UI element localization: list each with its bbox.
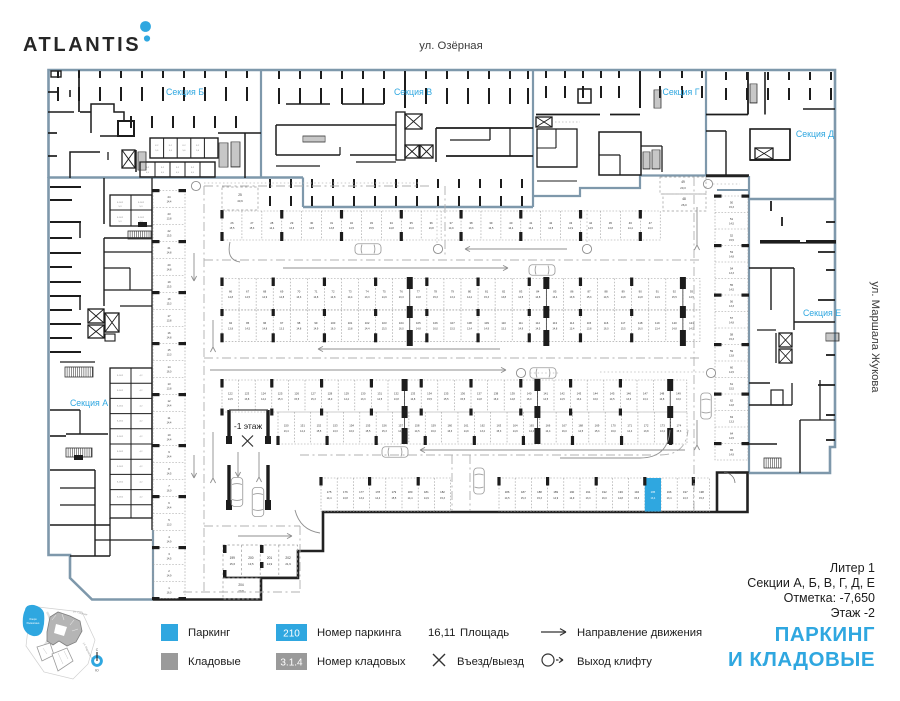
svg-text:16,0: 16,0: [638, 327, 643, 330]
svg-text:56: 56: [730, 299, 734, 303]
svg-text:14,8: 14,8: [729, 255, 734, 258]
svg-text:86: 86: [570, 290, 574, 294]
svg-text:13,8: 13,8: [394, 398, 399, 401]
svg-text:154: 154: [349, 423, 354, 427]
svg-text:61: 61: [730, 382, 734, 386]
svg-text:14,5: 14,5: [560, 398, 565, 401]
svg-text:15,3: 15,3: [167, 303, 172, 306]
svg-text:136: 136: [460, 391, 465, 395]
svg-text:36: 36: [430, 221, 434, 225]
svg-text:153: 153: [333, 423, 338, 427]
svg-text:13,4: 13,4: [450, 296, 455, 299]
svg-text:118: 118: [638, 321, 643, 325]
svg-text:64: 64: [730, 431, 734, 435]
svg-text:38: 38: [469, 221, 473, 225]
svg-text:16,0: 16,0: [167, 490, 172, 493]
svg-text:14,8: 14,8: [552, 327, 557, 330]
svg-text:К-1/02: К-1/02: [117, 202, 124, 204]
svg-text:25: 25: [238, 193, 242, 197]
svg-text:40: 40: [509, 221, 513, 225]
svg-text:14,9: 14,9: [655, 296, 660, 299]
svg-text:92: 92: [673, 290, 677, 294]
svg-text:156: 156: [382, 423, 387, 427]
svg-text:14,4: 14,4: [261, 398, 266, 401]
svg-text:13,8: 13,8: [429, 227, 434, 230]
svg-text:175: 175: [327, 490, 332, 494]
svg-text:75: 75: [383, 290, 387, 294]
svg-text:14,8: 14,8: [167, 337, 172, 340]
svg-text:13,3: 13,3: [469, 227, 474, 230]
svg-text:145: 145: [610, 391, 615, 395]
svg-text:95: 95: [246, 321, 250, 325]
svg-text:К-1/02: К-1/02: [117, 451, 124, 453]
svg-text:16,0: 16,0: [167, 371, 172, 374]
svg-text:14,8: 14,8: [535, 296, 540, 299]
svg-text:14,9: 14,9: [568, 227, 573, 230]
svg-text:138: 138: [494, 391, 499, 395]
svg-text:160: 160: [447, 423, 452, 427]
svg-text:127: 127: [311, 391, 316, 395]
svg-text:140: 140: [527, 391, 532, 395]
svg-text:200: 200: [248, 556, 254, 560]
svg-text:И КЛАДОВЫЕ: И КЛАДОВЫЕ: [728, 648, 875, 671]
svg-text:14,5: 14,5: [245, 327, 250, 330]
svg-text:15,5: 15,5: [382, 327, 387, 330]
svg-text:13,8: 13,8: [167, 388, 172, 391]
svg-text:39: 39: [489, 221, 493, 225]
svg-text:14,5: 14,5: [518, 296, 523, 299]
svg-text:87: 87: [587, 290, 591, 294]
svg-text:15,5: 15,5: [167, 286, 172, 289]
svg-text:116: 116: [604, 321, 609, 325]
svg-text:ул. Озёрная: ул. Озёрная: [419, 40, 482, 52]
svg-text:13,8: 13,8: [644, 430, 649, 433]
svg-text:88: 88: [605, 290, 609, 294]
svg-text:14,8: 14,8: [672, 327, 677, 330]
svg-text:120: 120: [672, 321, 677, 325]
svg-text:105: 105: [416, 321, 421, 325]
svg-text:К-1/02: К-1/02: [117, 481, 124, 483]
svg-text:13,3: 13,3: [365, 296, 370, 299]
svg-text:112: 112: [536, 321, 541, 325]
svg-text:147: 147: [643, 391, 648, 395]
svg-text:Направление движения: Направление движения: [577, 627, 702, 639]
svg-text:13,8: 13,8: [167, 218, 172, 221]
svg-text:72: 72: [331, 290, 335, 294]
svg-text:Выход клифту: Выход клифту: [577, 656, 652, 668]
svg-text:21: 21: [167, 246, 171, 250]
svg-text:177: 177: [359, 490, 364, 494]
svg-text:110: 110: [501, 321, 506, 325]
svg-text:191: 191: [586, 490, 591, 494]
svg-text:23: 23: [167, 212, 171, 216]
svg-text:14,5: 14,5: [488, 227, 493, 230]
svg-text:14,9: 14,9: [382, 296, 387, 299]
svg-text:199: 199: [230, 556, 236, 560]
svg-text:124: 124: [261, 391, 266, 395]
svg-text:130: 130: [361, 391, 366, 395]
svg-text:181: 181: [424, 490, 429, 494]
svg-text:13,3: 13,3: [626, 398, 631, 401]
svg-text:67: 67: [246, 290, 250, 294]
svg-text:14,9: 14,9: [569, 497, 574, 500]
svg-text:159: 159: [431, 423, 436, 427]
svg-text:20,3: 20,3: [680, 186, 686, 190]
svg-text:14,4: 14,4: [627, 430, 632, 433]
svg-text:33: 33: [370, 221, 374, 225]
svg-text:15,5: 15,5: [366, 430, 371, 433]
svg-text:76: 76: [400, 290, 404, 294]
svg-text:13,3: 13,3: [361, 398, 366, 401]
svg-text:15,3: 15,3: [595, 430, 600, 433]
svg-text:14,4: 14,4: [167, 456, 172, 459]
svg-text:171: 171: [627, 423, 632, 427]
svg-text:Кладовые: Кладовые: [188, 656, 241, 668]
svg-text:14,4: 14,4: [269, 227, 274, 230]
svg-text:ПАРКИНГ: ПАРКИНГ: [775, 623, 875, 646]
svg-text:192: 192: [602, 490, 607, 494]
svg-text:71: 71: [314, 290, 318, 294]
svg-text:К-1/02: К-1/02: [117, 405, 124, 407]
svg-text:14,9: 14,9: [167, 541, 172, 544]
svg-text:122: 122: [228, 391, 233, 395]
svg-text:Секция А: Секция А: [70, 398, 108, 408]
svg-text:К-1/02: К-1/02: [117, 375, 124, 377]
svg-text:44: 44: [589, 221, 593, 225]
svg-text:15,3: 15,3: [537, 497, 542, 500]
svg-text:15,5: 15,5: [621, 327, 626, 330]
svg-text:15,6: 15,6: [230, 562, 236, 566]
svg-text:90: 90: [639, 290, 643, 294]
svg-text:14,4: 14,4: [529, 430, 534, 433]
svg-text:53: 53: [730, 250, 734, 254]
svg-text:58: 58: [730, 332, 734, 336]
svg-text:К-1/02: К-1/02: [117, 421, 124, 423]
svg-text:129: 129: [344, 391, 349, 395]
svg-text:193: 193: [618, 490, 623, 494]
svg-text:85: 85: [553, 290, 557, 294]
svg-text:14,8: 14,8: [167, 252, 172, 255]
svg-text:14,9: 14,9: [262, 296, 267, 299]
svg-text:170: 170: [611, 423, 616, 427]
svg-text:204: 204: [238, 583, 244, 587]
svg-text:125: 125: [278, 391, 283, 395]
svg-text:15,3: 15,3: [249, 227, 254, 230]
svg-text:Въезд/выезд: Въезд/выезд: [457, 656, 524, 668]
svg-text:14,4: 14,4: [300, 430, 305, 433]
svg-text:152: 152: [317, 423, 322, 427]
svg-text:14,4: 14,4: [327, 497, 332, 500]
svg-text:К-1/02: К-1/02: [138, 217, 145, 219]
svg-text:14,8: 14,8: [389, 227, 394, 230]
svg-text:60: 60: [730, 365, 734, 369]
svg-text:197: 197: [683, 490, 688, 494]
svg-text:15,3: 15,3: [501, 327, 506, 330]
svg-text:15,3: 15,3: [311, 398, 316, 401]
svg-text:14,4: 14,4: [167, 422, 172, 425]
svg-text:14,5: 14,5: [548, 227, 553, 230]
svg-text:164: 164: [513, 423, 518, 427]
svg-text:108: 108: [467, 321, 472, 325]
svg-text:14,8: 14,8: [659, 398, 664, 401]
svg-text:117: 117: [621, 321, 626, 325]
svg-text:Озеро: Озеро: [29, 617, 37, 621]
svg-text:ул. Маршала Жукова: ул. Маршала Жукова: [869, 281, 881, 393]
svg-text:34: 34: [390, 221, 394, 225]
svg-text:15,3: 15,3: [587, 296, 592, 299]
svg-text:13,8: 13,8: [167, 320, 172, 323]
svg-text:14,4: 14,4: [467, 296, 472, 299]
svg-text:16,0: 16,0: [167, 592, 172, 595]
svg-text:15: 15: [167, 348, 171, 352]
svg-text:14,8: 14,8: [729, 321, 734, 324]
svg-text:97: 97: [280, 321, 284, 325]
svg-text:Этаж -2: Этаж -2: [831, 606, 876, 620]
svg-text:169: 169: [595, 423, 600, 427]
svg-text:59: 59: [730, 349, 734, 353]
svg-text:13,3: 13,3: [399, 296, 404, 299]
svg-text:14,9: 14,9: [518, 327, 523, 330]
svg-text:14,8: 14,8: [618, 497, 623, 500]
svg-text:24: 24: [167, 195, 171, 199]
svg-text:13,3: 13,3: [409, 227, 414, 230]
svg-text:52: 52: [730, 233, 734, 237]
svg-text:14,5: 14,5: [588, 227, 593, 230]
svg-text:46: 46: [629, 221, 633, 225]
svg-text:Секция Д: Секция Д: [796, 129, 834, 139]
svg-text:27: 27: [250, 221, 254, 225]
svg-text:134: 134: [427, 391, 432, 395]
svg-text:139: 139: [510, 391, 515, 395]
svg-text:15,3: 15,3: [496, 430, 501, 433]
svg-text:13,3: 13,3: [648, 227, 653, 230]
svg-text:13,4: 13,4: [660, 430, 665, 433]
svg-text:45: 45: [609, 221, 613, 225]
svg-text:166: 166: [546, 423, 551, 427]
svg-text:15,5: 15,5: [672, 296, 677, 299]
svg-text:167: 167: [562, 423, 567, 427]
svg-text:144: 144: [593, 391, 598, 395]
svg-text:66: 66: [229, 290, 233, 294]
svg-text:135: 135: [444, 391, 449, 395]
svg-text:16: 16: [167, 331, 171, 335]
svg-text:82: 82: [502, 290, 506, 294]
svg-text:74: 74: [366, 290, 370, 294]
svg-text:14,5: 14,5: [167, 558, 172, 561]
svg-text:14,8: 14,8: [262, 327, 267, 330]
svg-text:14,9: 14,9: [449, 227, 454, 230]
svg-text:14,8: 14,8: [621, 296, 626, 299]
svg-text:15,5: 15,5: [450, 327, 455, 330]
svg-text:14,8: 14,8: [416, 327, 421, 330]
svg-text:13,4: 13,4: [667, 497, 672, 500]
svg-text:13,8: 13,8: [608, 227, 613, 230]
svg-text:13,8: 13,8: [348, 327, 353, 330]
svg-text:14,4: 14,4: [375, 497, 380, 500]
svg-text:22: 22: [167, 229, 171, 233]
svg-text:146: 146: [626, 391, 631, 395]
svg-text:13,3: 13,3: [586, 497, 591, 500]
svg-text:16,0: 16,0: [431, 430, 436, 433]
svg-text:14,8: 14,8: [313, 296, 318, 299]
svg-text:13,3: 13,3: [683, 497, 688, 500]
svg-text:13,4: 13,4: [576, 398, 581, 401]
svg-text:18: 18: [167, 297, 171, 301]
svg-text:14,9: 14,9: [484, 327, 489, 330]
svg-text:180: 180: [408, 490, 413, 494]
svg-text:К-1/02: К-1/02: [117, 436, 124, 438]
svg-text:50: 50: [730, 200, 734, 204]
svg-text:57: 57: [730, 316, 734, 320]
svg-text:49: 49: [681, 180, 685, 184]
svg-text:14,8: 14,8: [296, 327, 301, 330]
svg-text:48: 48: [682, 197, 686, 201]
svg-text:16,0: 16,0: [433, 327, 438, 330]
svg-text:14,5: 14,5: [228, 398, 233, 401]
svg-text:178: 178: [375, 490, 380, 494]
svg-text:14,8: 14,8: [510, 398, 515, 401]
svg-text:14,5: 14,5: [309, 227, 314, 230]
svg-text:13,3: 13,3: [447, 430, 452, 433]
svg-text:201: 201: [267, 556, 273, 560]
svg-text:131: 131: [377, 391, 382, 395]
svg-text:13,3: 13,3: [729, 420, 734, 423]
svg-text:14,8: 14,8: [638, 296, 643, 299]
svg-text:158: 158: [415, 423, 420, 427]
svg-text:14,8: 14,8: [729, 404, 734, 407]
svg-text:13: 13: [167, 382, 171, 386]
svg-text:14,4: 14,4: [167, 507, 172, 510]
svg-text:16,0: 16,0: [493, 398, 498, 401]
svg-text:187: 187: [521, 490, 526, 494]
svg-text:132: 132: [394, 391, 399, 395]
svg-text:13,8: 13,8: [416, 296, 421, 299]
svg-text:13,3: 13,3: [289, 227, 294, 230]
svg-text:13,8: 13,8: [587, 327, 592, 330]
svg-text:98: 98: [297, 321, 301, 325]
svg-text:Секция Г: Секция Г: [662, 87, 699, 97]
svg-text:81: 81: [485, 290, 489, 294]
svg-text:14,9: 14,9: [553, 497, 558, 500]
svg-text:14,9: 14,9: [729, 453, 734, 456]
svg-text:Номер кладовых: Номер кладовых: [317, 656, 406, 668]
svg-text:14,8: 14,8: [477, 398, 482, 401]
svg-text:14,9: 14,9: [513, 430, 518, 433]
svg-text:149: 149: [676, 391, 681, 395]
svg-text:Секция Е: Секция Е: [803, 308, 841, 318]
svg-text:16,0: 16,0: [602, 497, 607, 500]
svg-text:К-1/02: К-1/02: [117, 390, 124, 392]
svg-text:195: 195: [651, 490, 656, 494]
svg-text:14: 14: [167, 365, 171, 369]
svg-text:Площадь: Площадь: [460, 627, 509, 639]
svg-text:163: 163: [497, 423, 502, 427]
svg-text:ATLANTIS: ATLANTIS: [23, 34, 141, 56]
svg-text:143: 143: [577, 391, 582, 395]
svg-text:14,8: 14,8: [279, 296, 284, 299]
svg-text:202: 202: [285, 556, 291, 560]
svg-text:14,9: 14,9: [424, 497, 429, 500]
svg-text:Ю: Ю: [95, 669, 99, 673]
svg-text:68: 68: [263, 290, 267, 294]
svg-text:37: 37: [450, 221, 454, 225]
svg-text:102: 102: [365, 321, 370, 325]
svg-text:210: 210: [283, 629, 300, 640]
svg-text:176: 176: [343, 490, 348, 494]
svg-text:15,3: 15,3: [729, 206, 734, 209]
svg-text:13,4: 13,4: [284, 430, 289, 433]
svg-text:137: 137: [477, 391, 482, 395]
svg-text:13,5: 13,5: [248, 562, 254, 566]
svg-text:103: 103: [382, 321, 387, 325]
svg-text:182: 182: [440, 490, 445, 494]
svg-text:13,8: 13,8: [228, 327, 233, 330]
svg-text:13,4: 13,4: [569, 327, 574, 330]
svg-text:14,8: 14,8: [331, 296, 336, 299]
svg-text:29: 29: [290, 221, 294, 225]
svg-text:80: 80: [468, 290, 472, 294]
svg-text:148: 148: [660, 391, 665, 395]
svg-text:13,4: 13,4: [552, 296, 557, 299]
svg-text:14,5: 14,5: [543, 398, 548, 401]
svg-text:15,3: 15,3: [382, 430, 387, 433]
svg-text:28: 28: [270, 221, 274, 225]
svg-text:Литер 1: Литер 1: [830, 561, 875, 575]
svg-text:104: 104: [399, 321, 404, 325]
svg-text:13,8: 13,8: [569, 296, 574, 299]
svg-text:14,5: 14,5: [610, 398, 615, 401]
svg-text:41: 41: [529, 221, 533, 225]
svg-text:15,5: 15,5: [167, 235, 172, 238]
svg-text:51: 51: [730, 217, 734, 221]
svg-text:15,5: 15,5: [230, 227, 235, 230]
svg-text:3.1.4: 3.1.4: [280, 658, 303, 669]
svg-text:15,3: 15,3: [729, 338, 734, 341]
svg-text:Паркинг: Паркинг: [188, 627, 230, 639]
svg-text:14,5: 14,5: [377, 398, 382, 401]
svg-text:12: 12: [167, 399, 171, 403]
svg-text:13,3: 13,3: [167, 524, 172, 527]
svg-text:83: 83: [519, 290, 523, 294]
svg-text:106: 106: [433, 321, 438, 325]
svg-text:14,9: 14,9: [167, 575, 172, 578]
svg-text:186: 186: [505, 490, 510, 494]
svg-text:15,5: 15,5: [391, 497, 396, 500]
svg-text:157: 157: [398, 423, 403, 427]
svg-text:15,3: 15,3: [484, 296, 489, 299]
svg-text:55: 55: [730, 283, 734, 287]
svg-text:К-1/02: К-1/02: [117, 217, 124, 219]
svg-text:14,4: 14,4: [508, 227, 513, 230]
svg-text:14,9: 14,9: [267, 562, 273, 566]
svg-text:15,5: 15,5: [369, 227, 374, 230]
svg-text:Отметка: -7,650: Отметка: -7,650: [784, 591, 875, 605]
svg-text:70: 70: [297, 290, 301, 294]
svg-text:15,5: 15,5: [427, 398, 432, 401]
svg-text:188: 188: [537, 490, 542, 494]
svg-text:198: 198: [699, 490, 704, 494]
svg-text:13,8: 13,8: [343, 497, 348, 500]
svg-text:31: 31: [330, 221, 334, 225]
svg-text:194: 194: [634, 490, 639, 494]
svg-text:173: 173: [660, 423, 665, 427]
svg-text:151: 151: [300, 423, 305, 427]
svg-text:69: 69: [280, 290, 284, 294]
svg-text:16,11: 16,11: [428, 627, 455, 639]
svg-text:Раскопино: Раскопино: [27, 621, 40, 625]
svg-text:13,4: 13,4: [359, 497, 364, 500]
svg-text:13,3: 13,3: [167, 354, 172, 357]
